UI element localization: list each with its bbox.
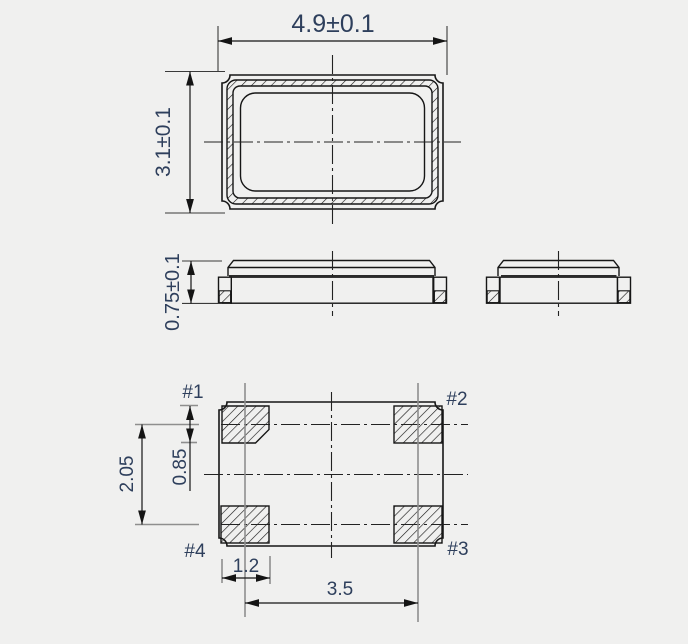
pad-1-label: #1 — [182, 382, 203, 403]
side-view-end — [487, 251, 631, 316]
dim-pad-col-pitch: 3.5 — [245, 579, 418, 603]
dim-pad-col-pitch-text: 3.5 — [327, 579, 353, 600]
dim-pad-size-y-text: 0.85 — [170, 449, 191, 486]
terminal-pad-right — [434, 291, 445, 303]
top-view — [204, 55, 461, 228]
terminal-pad-right-end — [618, 291, 630, 303]
dim-pad-size-x-text: 1.2 — [233, 556, 259, 577]
terminal-pad-left — [219, 291, 230, 303]
lid-front — [228, 261, 435, 277]
dim-body-height-text: 3.1±0.1 — [152, 107, 175, 177]
dim-pad-row-pitch: 2.05 — [117, 425, 142, 525]
pad-3-label: #3 — [447, 539, 468, 560]
dim-pad-row-pitch-text: 2.05 — [117, 456, 138, 493]
page: { "drawing": { "title": "package-outline… — [0, 0, 688, 644]
dim-pad-size-y: 0.85 — [170, 406, 191, 491]
dim-thickness-text: 0.75±0.1 — [162, 253, 184, 331]
side-view-front — [219, 251, 447, 316]
dim-thickness: 0.75±0.1 — [162, 253, 222, 331]
package-drawing: 4.9±0.1 3.1±0.1 0.75±0.1 — [0, 0, 688, 644]
pad-4-label: #4 — [184, 541, 206, 562]
bottom-view: 2.05 0.85 1.2 3.5 #1 #2 #3 #4 — [117, 382, 469, 622]
terminal-pad-left-end — [487, 291, 499, 303]
dim-body-width-text: 4.9±0.1 — [291, 10, 374, 38]
dim-pad-size-x: 1.2 — [222, 556, 270, 578]
pad-2-label: #2 — [446, 389, 467, 410]
